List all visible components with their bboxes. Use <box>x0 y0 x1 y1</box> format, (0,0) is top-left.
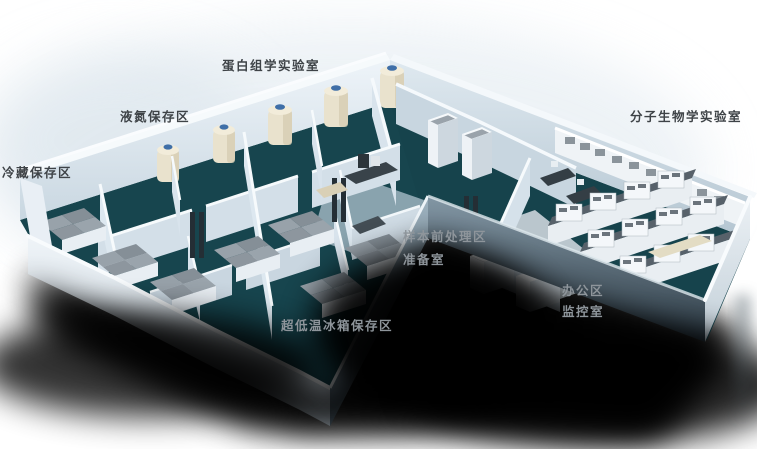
area-label-liquid-nitrogen-storage: 液氮保存区 <box>120 111 190 124</box>
area-label-ult-freezer-storage: 超低温冰箱保存区 <box>281 320 393 333</box>
area-label-cold-storage: 冷藏保存区 <box>2 167 72 180</box>
area-label-prep-room: 准备室 <box>403 254 445 267</box>
area-label-sample-pretreatment: 样本前处理区 <box>403 231 487 244</box>
area-label-monitoring-room: 监控室 <box>562 306 604 319</box>
area-label-office-area: 办公区 <box>562 285 604 298</box>
lab-floorplan-scene: 蛋白组学实验室 液氮保存区 冷藏保存区 分子生物学实验室 样本前处理区 准备室 … <box>0 0 757 449</box>
area-label-molecular-biology-lab: 分子生物学实验室 <box>630 111 742 124</box>
area-label-proteomics-lab: 蛋白组学实验室 <box>222 60 320 73</box>
lab-floorplan-3d <box>0 0 757 449</box>
